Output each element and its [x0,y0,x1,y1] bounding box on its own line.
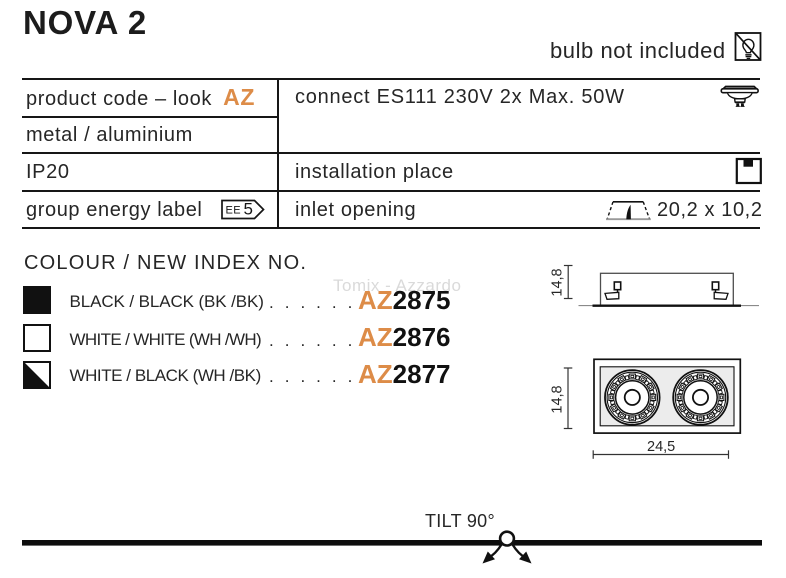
svg-text:EE: EE [226,205,241,217]
svg-text:5: 5 [244,200,253,219]
